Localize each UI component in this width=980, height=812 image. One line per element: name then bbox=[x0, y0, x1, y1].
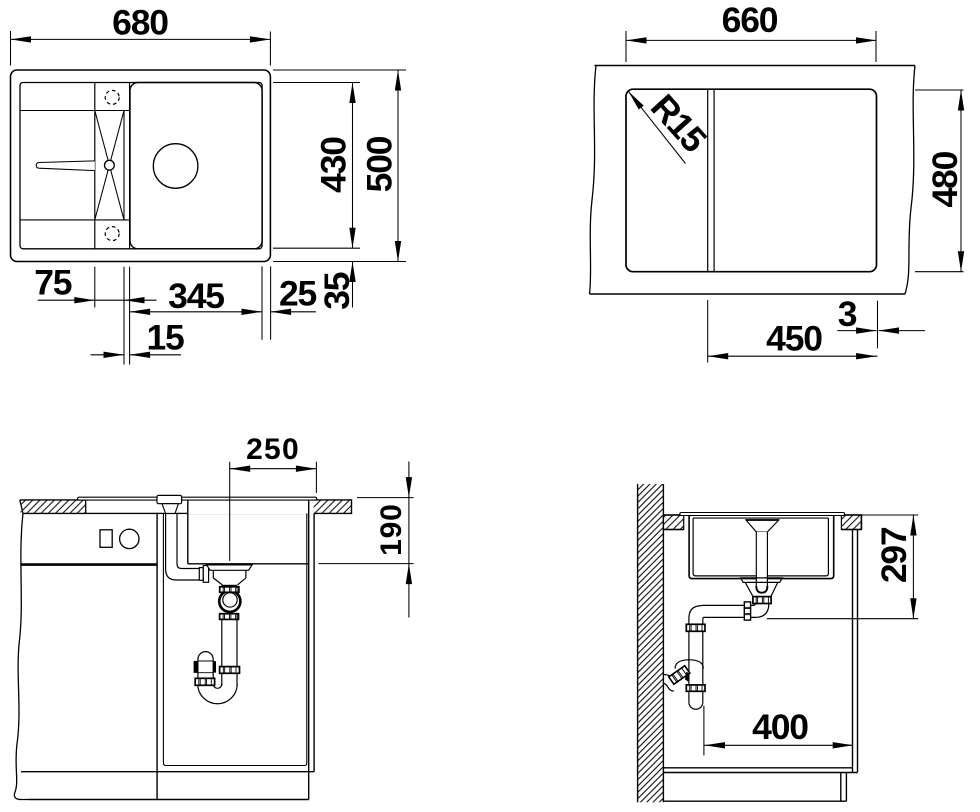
svg-text:R15: R15 bbox=[643, 87, 714, 160]
svg-text:660: 660 bbox=[722, 0, 778, 40]
svg-text:297: 297 bbox=[874, 527, 914, 583]
svg-text:450: 450 bbox=[766, 319, 822, 359]
svg-text:25: 25 bbox=[279, 274, 317, 314]
svg-text:75: 75 bbox=[34, 262, 72, 302]
svg-text:680: 680 bbox=[112, 3, 168, 43]
svg-text:190: 190 bbox=[375, 503, 408, 555]
svg-text:345: 345 bbox=[168, 276, 224, 316]
svg-text:15: 15 bbox=[146, 318, 184, 358]
svg-text:400: 400 bbox=[752, 707, 808, 747]
svg-text:3: 3 bbox=[838, 294, 857, 334]
svg-text:500: 500 bbox=[360, 136, 400, 192]
svg-text:430: 430 bbox=[314, 137, 354, 193]
svg-text:250: 250 bbox=[246, 433, 300, 466]
svg-text:480: 480 bbox=[925, 151, 965, 207]
